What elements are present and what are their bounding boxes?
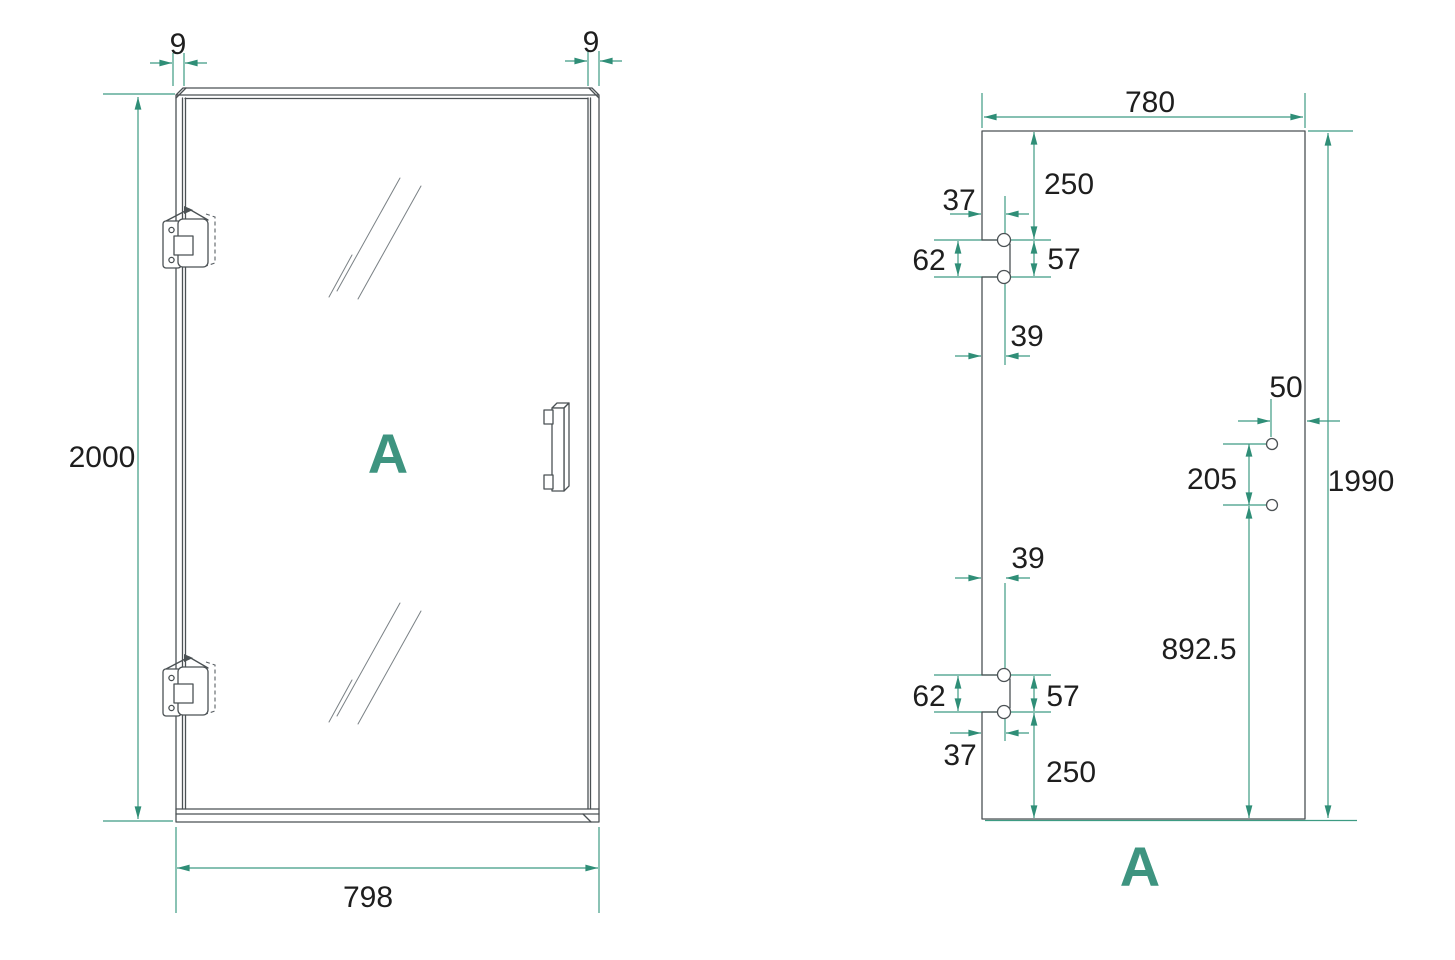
dim-panel-handle-bottom-label: 892.5 [1161,633,1236,666]
panel-outline [982,131,1305,819]
dim-panel-top-notch-edge-label: 37 [942,184,975,217]
top-notch-upper-hole [998,234,1011,247]
panel-view: 780 250 37 62 57 39 50 205 1990 892.5 39… [912,86,1394,898]
dim-front-width-label: 798 [343,881,393,914]
dim-panel-bottom-notch-offset-label: 250 [1046,756,1096,789]
drawing-canvas: 9 9 2000 798 A [0,0,1455,960]
panel-view-panel-label: A [1120,835,1160,898]
dim-panel-bottom-hole-pitch-label: 57 [1046,680,1079,713]
dim-front-height-label: 2000 [69,441,136,474]
dim-front-frame-right-label: 9 [583,26,600,59]
top-notch-lower-hole [998,271,1011,284]
dim-panel-handle-edge-label: 50 [1269,371,1302,404]
handle-lower-hole [1267,500,1278,511]
dim-panel-width-label: 780 [1125,86,1175,119]
front-view-panel-label: A [368,422,408,485]
door-handle [544,403,569,491]
dim-panel-height-label: 1990 [1328,465,1395,498]
dim-panel-top-notch-height-label: 62 [912,244,945,277]
dim-panel-bottom-notch-edge-label: 37 [943,739,976,772]
dim-panel-top-notch-offset-label: 250 [1044,168,1094,201]
bottom-hinge [163,654,215,716]
top-hinge [163,206,215,268]
dim-panel-bottom-notch-depth-label: 39 [1011,542,1044,575]
dim-panel-top-notch-depth-label: 39 [1010,320,1043,353]
bottom-notch-upper-hole [998,669,1011,682]
dim-panel-bottom-notch-height-label: 62 [912,680,945,713]
front-view: 9 9 2000 798 A [69,26,622,914]
dim-panel-handle-pitch-label: 205 [1187,463,1237,496]
technical-drawing-page: 9 9 2000 798 A [0,0,1455,960]
dim-panel-top-hole-pitch-label: 57 [1047,243,1080,276]
glass-panel [982,131,1305,819]
bottom-notch-lower-hole [998,706,1011,719]
handle-upper-hole [1267,439,1278,450]
dim-front-frame-left-label: 9 [170,28,187,61]
